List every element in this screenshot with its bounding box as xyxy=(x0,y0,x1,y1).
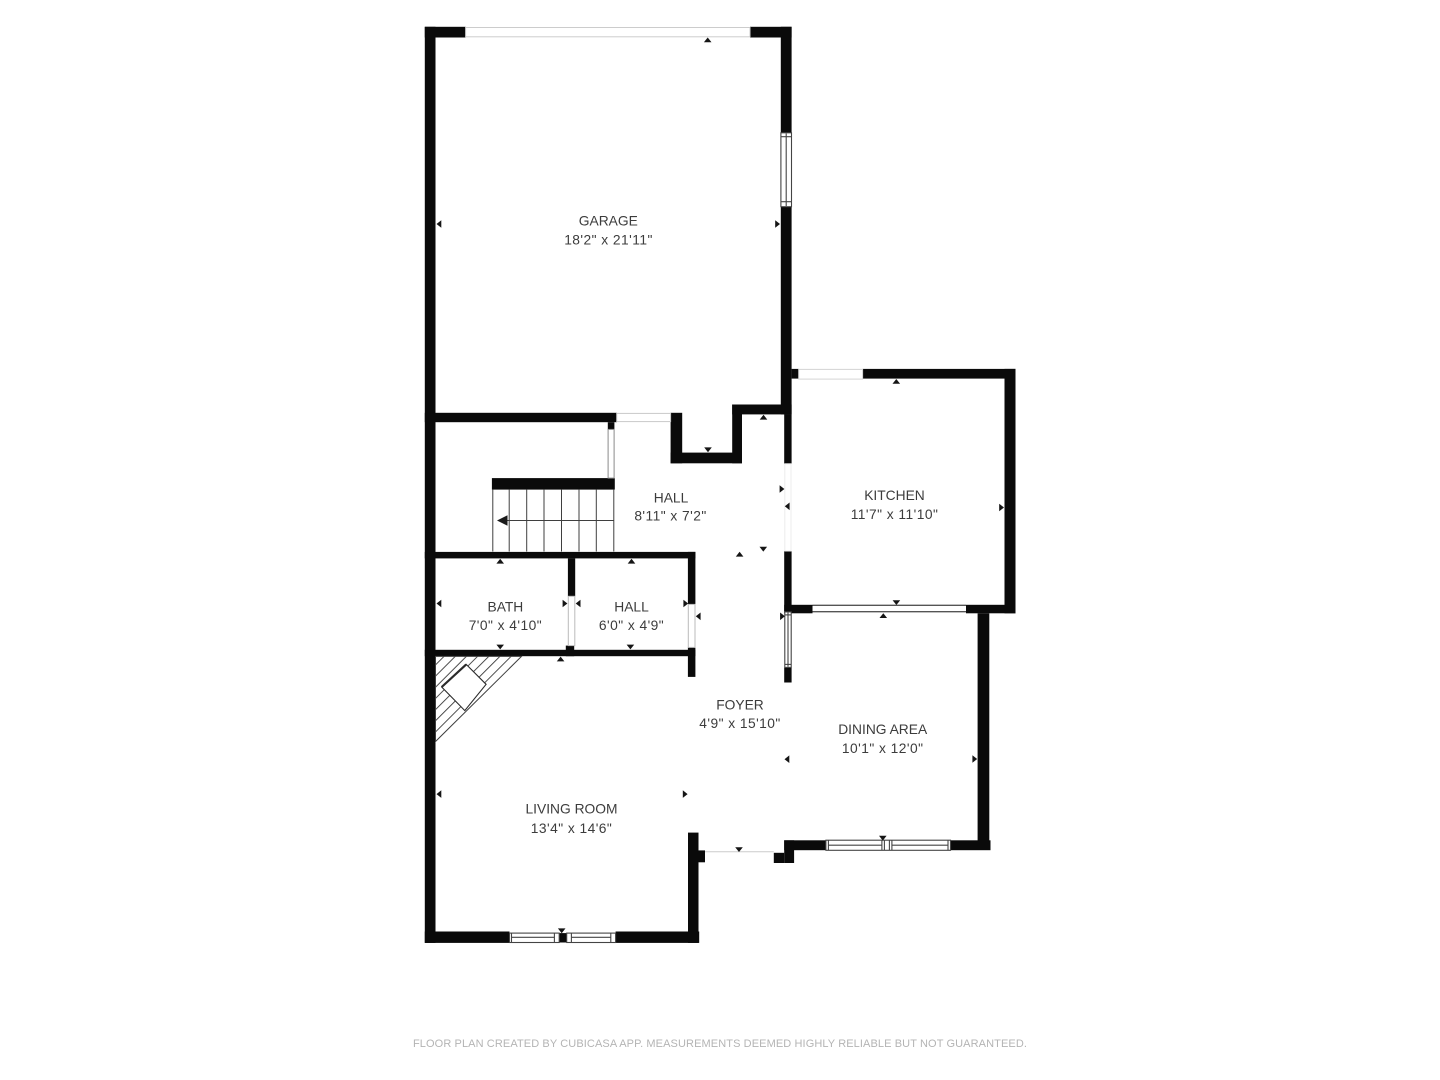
svg-text:6'0" x 4'9": 6'0" x 4'9" xyxy=(599,618,664,633)
svg-text:HALL: HALL xyxy=(614,600,649,615)
svg-text:10'1" x 12'0": 10'1" x 12'0" xyxy=(842,741,924,756)
svg-text:GARAGE: GARAGE xyxy=(579,214,638,229)
svg-text:18'2" x 21'11": 18'2" x 21'11" xyxy=(564,233,653,248)
svg-text:BATH: BATH xyxy=(488,600,524,615)
svg-text:DINING AREA: DINING AREA xyxy=(838,722,928,737)
svg-text:FLOOR PLAN CREATED BY CUBICASA: FLOOR PLAN CREATED BY CUBICASA APP. MEAS… xyxy=(413,1038,1027,1050)
svg-text:11'7" x 11'10": 11'7" x 11'10" xyxy=(851,507,939,522)
svg-text:KITCHEN: KITCHEN xyxy=(864,488,925,503)
svg-text:8'11" x 7'2": 8'11" x 7'2" xyxy=(634,508,706,523)
svg-text:LIVING ROOM: LIVING ROOM xyxy=(526,802,618,817)
svg-text:HALL: HALL xyxy=(654,491,689,506)
svg-text:FOYER: FOYER xyxy=(716,697,764,712)
svg-text:13'4" x 14'6": 13'4" x 14'6" xyxy=(531,821,613,836)
svg-text:7'0" x 4'10": 7'0" x 4'10" xyxy=(469,618,542,633)
svg-text:4'9" x 15'10": 4'9" x 15'10" xyxy=(699,716,781,731)
